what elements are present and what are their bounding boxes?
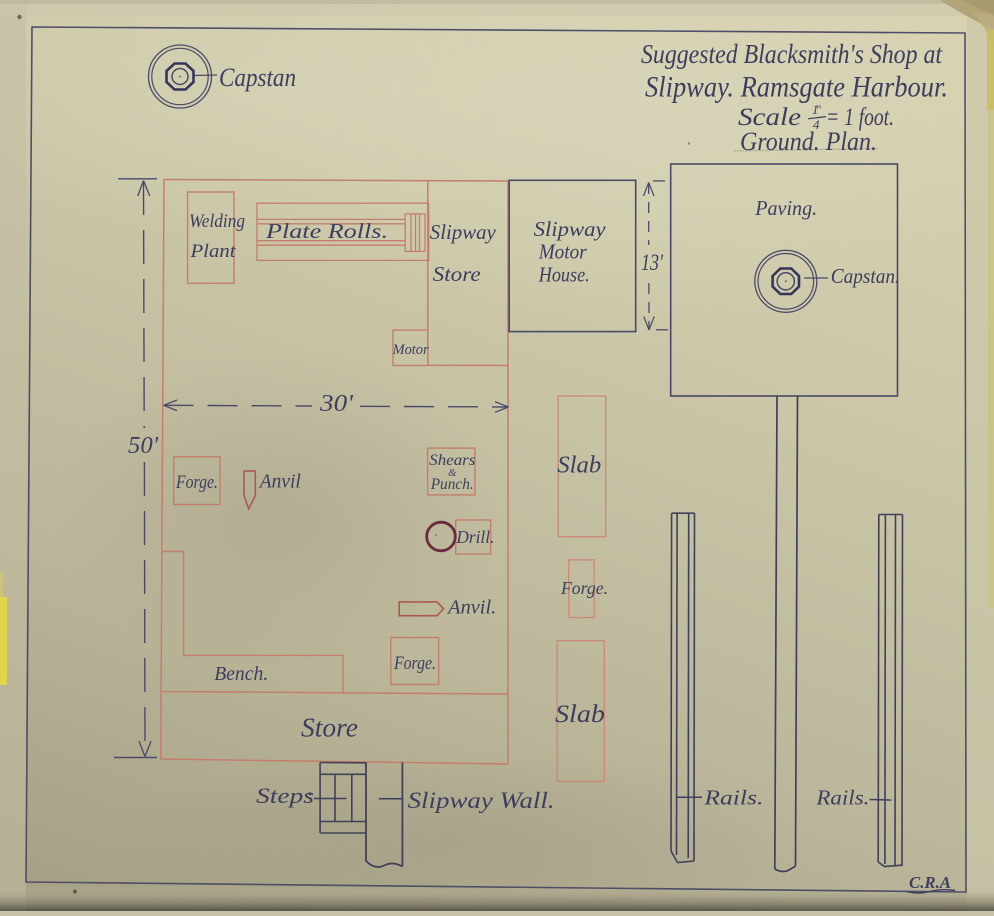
- svg-text:Rails.: Rails.: [703, 786, 763, 810]
- svg-text:Slab: Slab: [555, 701, 605, 728]
- svg-text:Punch.: Punch.: [430, 476, 474, 493]
- svg-text:Capstan: Capstan: [219, 63, 296, 92]
- svg-text:Plant: Plant: [189, 241, 236, 262]
- svg-text:Forge.: Forge.: [393, 653, 436, 674]
- svg-text:Bench.: Bench.: [214, 663, 268, 685]
- svg-text:Slipway. Ramsgate Harbour.: Slipway. Ramsgate Harbour.: [645, 71, 948, 104]
- svg-text:Anvil.: Anvil.: [446, 597, 496, 619]
- svg-text:Capstan.: Capstan.: [831, 264, 900, 288]
- svg-text:House.: House.: [538, 263, 590, 287]
- svg-text:Forge.: Forge.: [175, 472, 218, 493]
- svg-text:Plate Rolls.: Plate Rolls.: [265, 219, 388, 243]
- svg-text:Ground. Plan.: Ground. Plan.: [740, 127, 877, 156]
- svg-text:Slipway: Slipway: [534, 217, 607, 241]
- svg-text:Store: Store: [433, 262, 481, 286]
- svg-text:Store: Store: [301, 713, 358, 743]
- svg-text:Suggested Blacksmith's Shop at: Suggested Blacksmith's Shop at: [641, 39, 943, 69]
- svg-text:Slipway Wall.: Slipway Wall.: [408, 788, 555, 813]
- svg-text:Forge.: Forge.: [560, 578, 608, 598]
- svg-text:50': 50': [128, 433, 159, 459]
- svg-text:Welding: Welding: [189, 211, 245, 232]
- svg-text:Slab: Slab: [557, 453, 601, 479]
- svg-text:Drill.: Drill.: [455, 527, 494, 547]
- svg-text:Steps: Steps: [256, 783, 314, 808]
- svg-text:Anvil: Anvil: [258, 471, 301, 493]
- svg-text:Motor: Motor: [392, 342, 429, 358]
- svg-text:Paving.: Paving.: [754, 196, 817, 220]
- svg-text:13': 13': [641, 250, 664, 275]
- svg-text:Rails.: Rails.: [815, 786, 869, 810]
- svg-text:1": 1": [812, 102, 822, 117]
- svg-text:Motor: Motor: [538, 240, 588, 264]
- svg-text:Slipway: Slipway: [430, 220, 497, 244]
- svg-text:30': 30': [319, 391, 354, 417]
